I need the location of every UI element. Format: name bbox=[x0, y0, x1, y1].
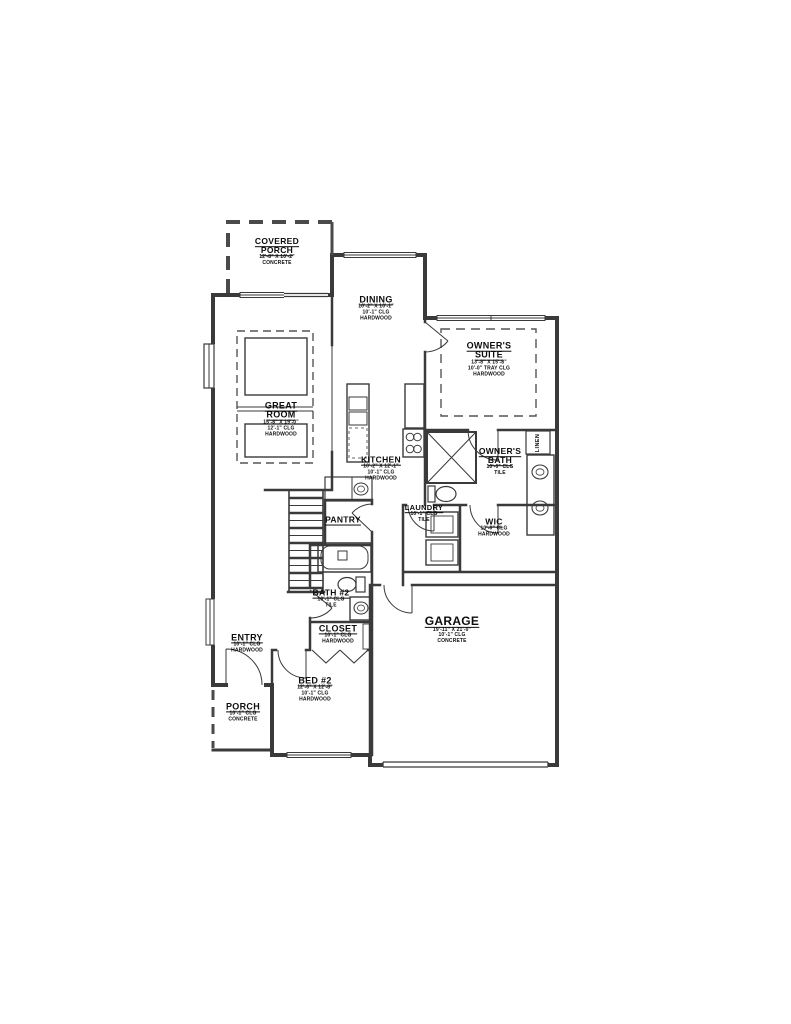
room-label-owners-suite: OWNER'S SUITE 13'-8" X 15'-8" 10'-0" TRA… bbox=[465, 342, 513, 379]
room-floor: HARDWOOD bbox=[231, 649, 263, 655]
room-label-linen: LINEN bbox=[535, 434, 541, 453]
room-floor: TILE bbox=[405, 518, 444, 524]
window-entry-left bbox=[206, 599, 215, 645]
shower bbox=[427, 432, 476, 483]
room-label-kitchen: KITCHEN 10'-2" X 12'-1" 10'-1" CLG HARDW… bbox=[361, 456, 401, 483]
floor-plan-linework bbox=[0, 0, 791, 1024]
room-name: PANTRY bbox=[325, 516, 361, 525]
room-label-covered-porch: COVERED PORCH 12'-8" X 10'-2" CONCRETE bbox=[253, 237, 301, 267]
bath2-vanity bbox=[350, 597, 372, 620]
bathtub bbox=[318, 543, 371, 572]
room-floor: HARDWOOD bbox=[297, 698, 333, 704]
room-label-pantry: PANTRY bbox=[325, 516, 361, 525]
room-name: COVERED PORCH bbox=[253, 237, 301, 255]
windows bbox=[204, 251, 545, 759]
room-floor: CONCRETE bbox=[226, 718, 260, 724]
room-name: OWNER'S BATH bbox=[477, 447, 523, 465]
room-floor: CONCRETE bbox=[253, 261, 301, 267]
room-floor: HARDWOOD bbox=[465, 372, 513, 378]
closet-bifold-doors bbox=[312, 650, 368, 663]
room-label-closet: CLOSET 10'-1" CLG HARDWOOD bbox=[319, 624, 357, 645]
room-floor: HARDWOOD bbox=[262, 432, 300, 438]
owners-bath-vanity bbox=[527, 455, 554, 535]
room-floor: TILE bbox=[313, 603, 350, 609]
room-floor: HARDWOOD bbox=[478, 532, 510, 538]
room-floor: TILE bbox=[477, 471, 523, 477]
owners-bath-toilet bbox=[428, 486, 456, 502]
room-label-owners-bath: OWNER'S BATH 10'-0" CLG TILE bbox=[477, 447, 523, 477]
room-name: GARAGE bbox=[425, 615, 479, 628]
room-floor: HARDWOOD bbox=[358, 317, 394, 323]
window-dining-top bbox=[344, 251, 416, 259]
floor-plan: COVERED PORCH 12'-8" X 10'-2" CONCRETE D… bbox=[0, 0, 791, 1024]
room-label-porch: PORCH 10'-1" CLG CONCRETE bbox=[226, 702, 260, 723]
slider-door-porch bbox=[284, 291, 328, 299]
room-label-bath2: BATH #2 10'-1" CLG TILE bbox=[313, 589, 350, 610]
window-bed2-bottom bbox=[287, 751, 351, 759]
owners-suite-door bbox=[425, 322, 448, 352]
bed2-door bbox=[278, 650, 306, 678]
great-room-feature bbox=[237, 331, 313, 463]
window-owners-suite-top bbox=[437, 314, 545, 322]
garage-door bbox=[383, 760, 548, 770]
room-floor: HARDWOOD bbox=[361, 476, 401, 482]
room-label-great-room: GREAT ROOM 15'-8" X 19'-0" 12'-1" CLG HA… bbox=[262, 402, 300, 439]
window-great-room-left bbox=[204, 344, 215, 388]
room-floor: HARDWOOD bbox=[319, 640, 357, 646]
room-label-dining: DINING 10'-2" X 10'-1" 10'-1" CLG HARDWO… bbox=[358, 295, 394, 322]
kitchen-island bbox=[347, 384, 369, 462]
stairs bbox=[289, 490, 323, 592]
room-name: OWNER'S SUITE bbox=[465, 342, 513, 361]
room-label-laundry: LAUNDRY 10'-1" CLG TILE bbox=[405, 504, 444, 524]
room-label-entry: ENTRY 10'-1" CLG HARDWOOD bbox=[231, 633, 263, 654]
room-label-bed2: BED #2 12'-6" X 12'-8" 10'-1" CLG HARDWO… bbox=[297, 676, 333, 703]
garage-entry-door bbox=[384, 585, 412, 613]
room-name: GREAT ROOM bbox=[262, 402, 300, 421]
room-label-wic: WIC 10'-0" CLG HARDWOOD bbox=[478, 518, 510, 539]
room-label-garage: GARAGE 19'-11" X 21'-0" 10'-1" CLG CONCR… bbox=[425, 615, 479, 645]
room-floor: CONCRETE bbox=[425, 639, 479, 645]
range bbox=[403, 384, 424, 457]
